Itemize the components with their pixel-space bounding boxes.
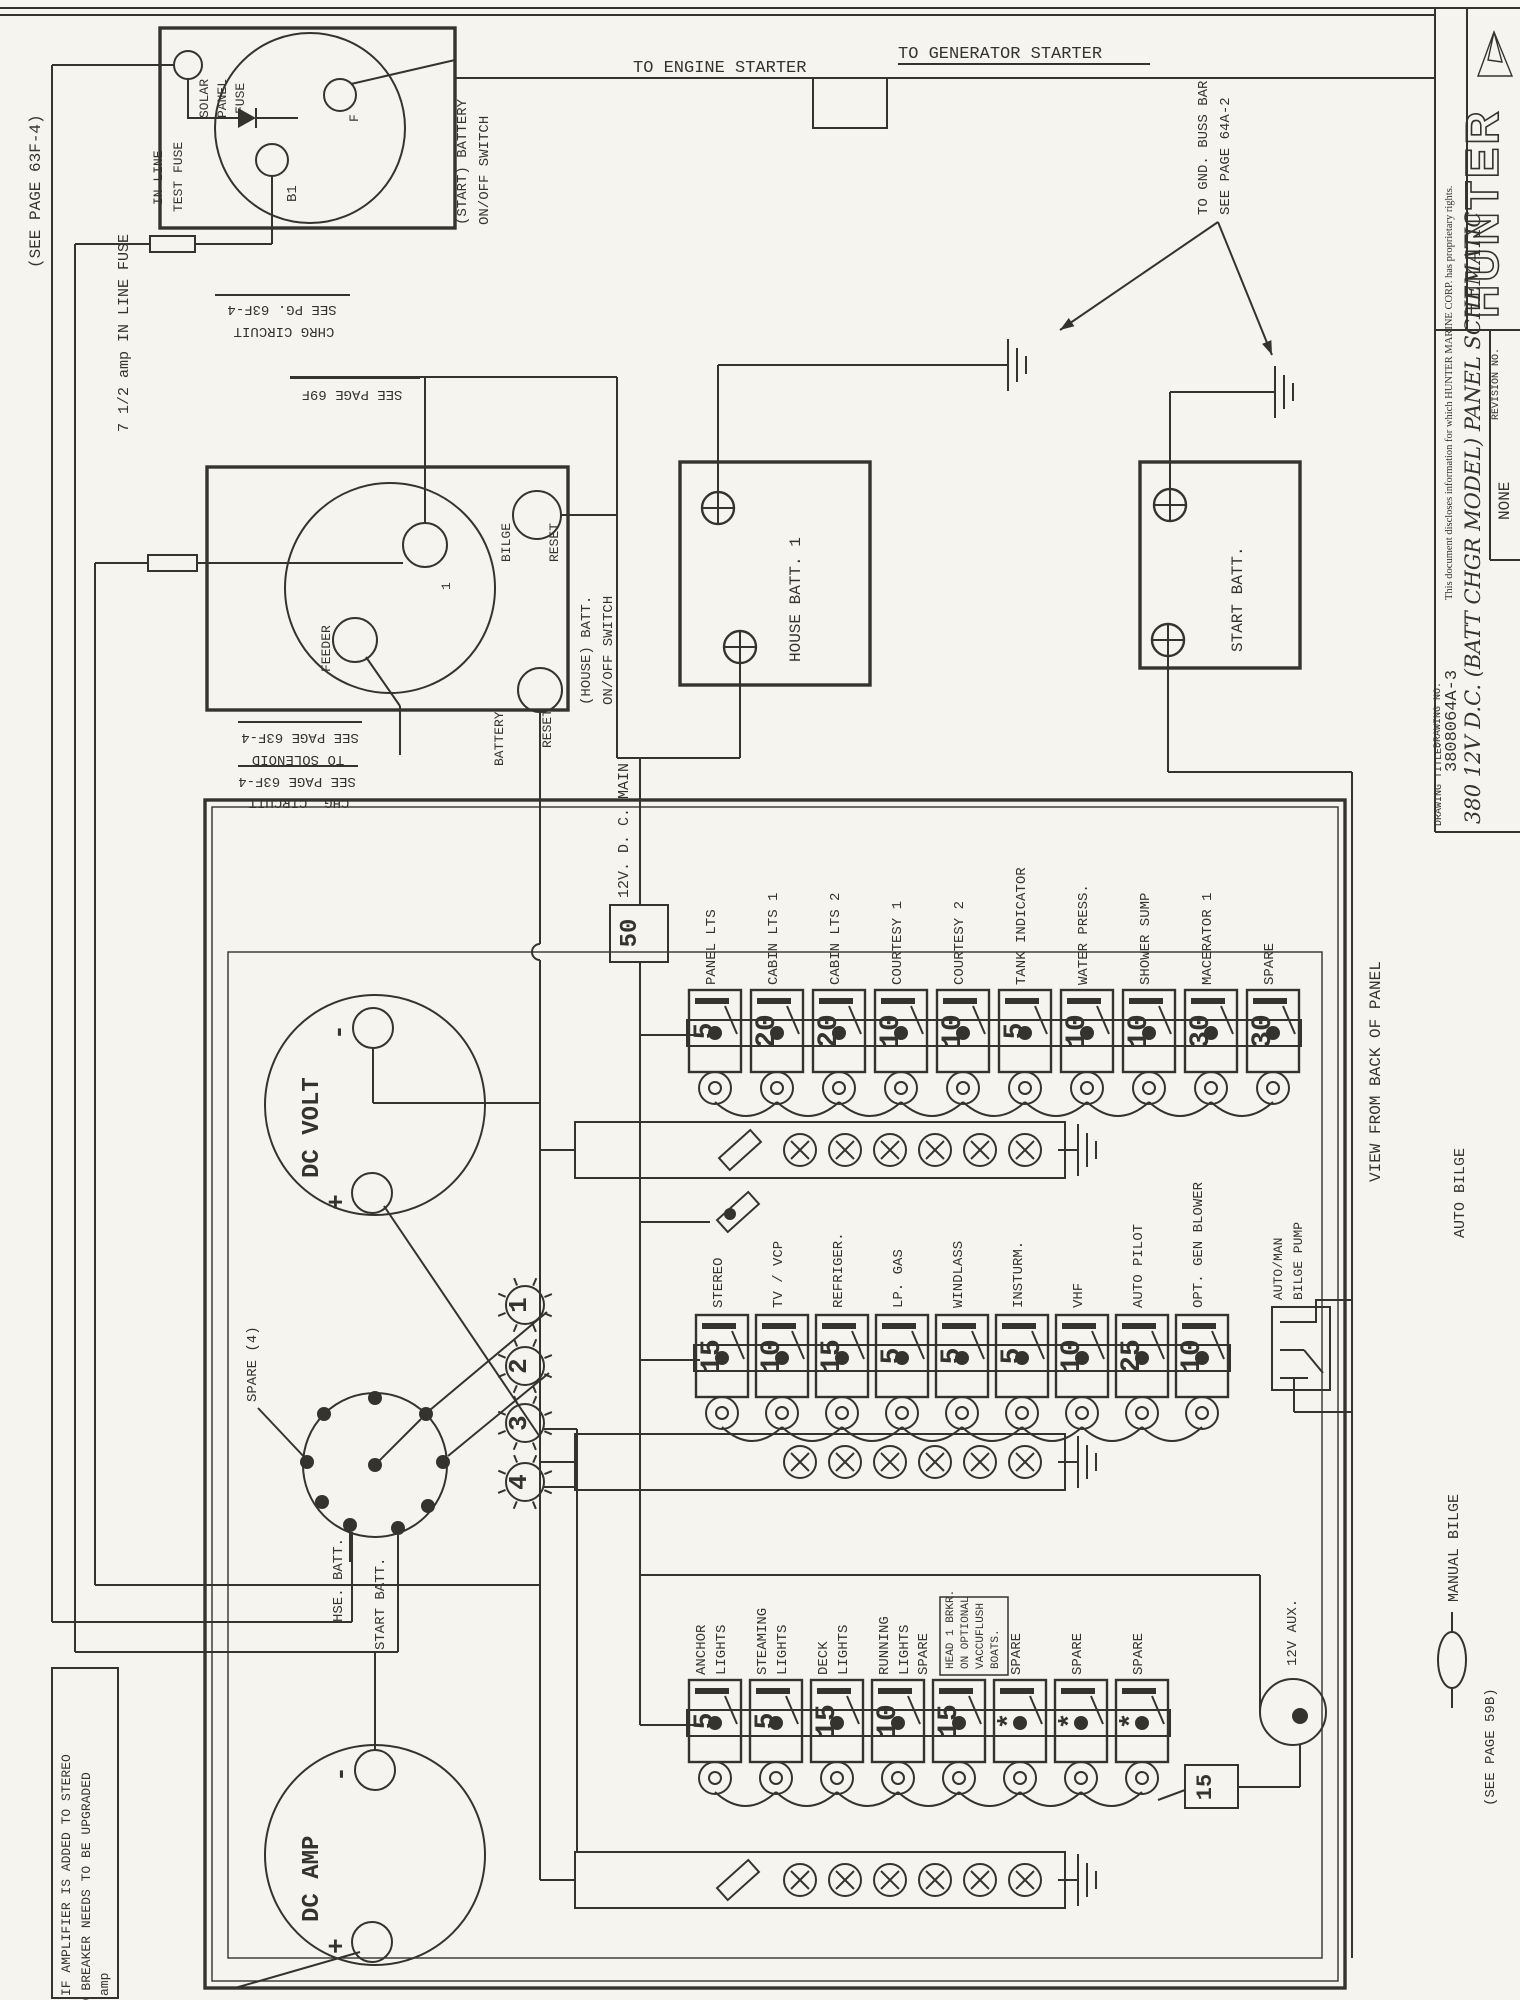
inline-test-fuse-icon: [150, 236, 195, 252]
breaker-terminal-center-icon: [1143, 1082, 1155, 1094]
wire: [836, 1141, 854, 1159]
bus-dot-icon: [1080, 1026, 1094, 1040]
schematic-drawing: (SEE PAGE 63F-4) IN LINE TEST FUSE SOLAR…: [0, 0, 1520, 2000]
bus-dot-icon: [1204, 1026, 1218, 1040]
breaker-label: TANK INDICATOR: [1014, 867, 1030, 985]
wire: [776, 1792, 837, 1806]
rotary-dot-icon: [317, 1407, 331, 1421]
rotary-dot-icon: [343, 1518, 357, 1532]
breaker-terminal-icon: [761, 1072, 793, 1104]
ground-bus-box: [575, 1852, 1065, 1908]
solar-fuse-label-3: FUSE: [233, 83, 248, 114]
inline-test-fuse-label-2: TEST FUSE: [171, 142, 186, 212]
wire: [836, 1453, 854, 1471]
wire: [1078, 1436, 1096, 1488]
rotary-hse-label: HSE. BATT.: [331, 1538, 347, 1622]
switch-lever-icon: [717, 1192, 759, 1232]
drawing-title-label: DRAWING TITLE:: [1434, 742, 1445, 826]
wire: [777, 1102, 839, 1116]
wire: [514, 1501, 517, 1508]
wire: [926, 1871, 944, 1889]
manual-bilge-label: MANUAL BILGE: [1446, 1494, 1463, 1602]
feeder-terminal-icon: [333, 618, 377, 662]
revision-label: REVISION NO.: [1491, 348, 1502, 420]
rotary-dot-icon: [368, 1391, 382, 1405]
start-battery-switch-box: [160, 28, 455, 228]
breaker-terminal-center-icon: [836, 1407, 848, 1419]
ground-bus-box: [575, 1122, 1065, 1178]
aux-outlet-icon: [1260, 1679, 1326, 1745]
bus-dot-icon: [1142, 1026, 1156, 1040]
wire: [533, 1442, 536, 1449]
terminal-1-label: 1: [439, 582, 454, 590]
rotary-dot-icon: [315, 1495, 329, 1509]
inline-fuse-7-5-icon: [148, 555, 197, 571]
manual-bilge-fuse-icon: [1438, 1632, 1466, 1688]
wire: [1275, 366, 1293, 418]
bus-dot-icon: [1074, 1716, 1088, 1730]
wire: [1218, 222, 1272, 355]
chg-note-2: CHG. CIRCUIT: [249, 794, 350, 810]
house-battery-switch-dial: [285, 483, 495, 693]
wire: [1149, 1102, 1211, 1116]
wire: [514, 1324, 517, 1331]
ground-bus-box: [575, 1434, 1065, 1490]
wire: [533, 1501, 536, 1508]
wire: [1016, 1453, 1034, 1471]
arrowhead-icon: [1262, 340, 1272, 355]
breaker-terminal-center-icon: [1196, 1407, 1208, 1419]
bus-dot-icon: [895, 1351, 909, 1365]
amp-plus-sign: +: [322, 1938, 352, 1954]
to-generator-starter-label: TO GENERATOR STARTER: [898, 45, 1102, 64]
wire: [498, 1294, 505, 1297]
see-page-69f-label: SEE PAGE 69F: [302, 386, 403, 402]
breaker-label: LP. GAS: [891, 1249, 907, 1308]
note-line-2: 30 BREAKER NEEDS TO BE UPGRADED: [79, 1772, 94, 2000]
bus-dot-icon: [715, 1351, 729, 1365]
breaker-contact-icon: [1067, 998, 1101, 1004]
wire: [533, 1324, 536, 1331]
hunter-logo-icon: [1478, 32, 1512, 76]
breaker-terminal-center-icon: [956, 1407, 968, 1419]
wire: [881, 1141, 899, 1159]
schematic-page: (SEE PAGE 63F-4) IN LINE TEST FUSE SOLAR…: [0, 0, 1520, 2000]
terminal-1-icon: [403, 523, 447, 567]
wire: [514, 1278, 517, 1285]
feeder-label: FEEDER: [319, 625, 334, 672]
breaker-terminal-center-icon: [1014, 1772, 1026, 1784]
bus-dot-icon: [830, 1716, 844, 1730]
start-battery-label: START BATT.: [1229, 546, 1247, 652]
breaker-contact-icon: [819, 998, 853, 1004]
breaker-terminal-center-icon: [831, 1772, 843, 1784]
lever-dot-icon: [724, 1208, 736, 1220]
wire: [514, 1385, 517, 1392]
breaker-note-line: HEAD 1 BRKR.: [945, 1590, 957, 1669]
wire: [1020, 1792, 1081, 1806]
breaker-label: MACERATOR 1: [1200, 893, 1216, 985]
wire: [498, 1355, 505, 1358]
breaker-terminal-center-icon: [1081, 1082, 1093, 1094]
breaker-terminal-center-icon: [896, 1407, 908, 1419]
breaker-terminal-icon: [766, 1397, 798, 1429]
wire: [926, 1141, 944, 1159]
wire: [791, 1141, 809, 1159]
breaker-terminal-center-icon: [770, 1772, 782, 1784]
breaker-label: DECK: [816, 1641, 832, 1675]
breaker-contact-icon: [695, 998, 729, 1004]
breaker-terminal-icon: [706, 1397, 738, 1429]
breaker-terminal-icon: [1009, 1072, 1041, 1104]
start-switch-label-2: ON/OFF SWITCH: [477, 116, 493, 225]
amp-minus-terminal-icon: [355, 1750, 395, 1790]
bus-dot-icon: [708, 1026, 722, 1040]
page-border: [0, 8, 1520, 15]
rotary-dot-icon: [419, 1407, 433, 1421]
breaker-terminal-center-icon: [716, 1407, 728, 1419]
rotary-dot-icon: [300, 1455, 314, 1469]
revision-value: NONE: [1496, 482, 1514, 520]
breaker-label: INSTURM.: [1011, 1241, 1027, 1308]
wire: [1016, 1871, 1034, 1889]
breaker-contact-icon: [822, 1323, 856, 1329]
volt-plus-terminal-icon: [352, 1173, 392, 1213]
wire: [514, 1455, 517, 1462]
breaker-contact-icon: [1182, 1323, 1216, 1329]
breaker-label: AUTO PILOT: [1131, 1224, 1147, 1308]
wire: [836, 1871, 854, 1889]
wire: [926, 1453, 944, 1471]
bilge-reset-label-1: BILGE: [499, 523, 514, 562]
breaker-label: SPARE: [916, 1633, 932, 1675]
bus-dot-icon: [1135, 1716, 1149, 1730]
breaker-terminal-center-icon: [709, 1772, 721, 1784]
generated-components: PANEL LTS5CABIN LTS 120CABIN LTS 220COUR…: [258, 222, 1301, 1908]
breaker-contact-icon: [1005, 998, 1039, 1004]
breaker-terminal-icon: [1065, 1762, 1097, 1794]
breaker-contact-icon: [756, 1688, 790, 1694]
wire: [791, 1871, 809, 1889]
breaker-terminal-center-icon: [709, 1082, 721, 1094]
breaker-contact-icon: [882, 1323, 916, 1329]
to-gnd-buss-label-1: TO GND. BUSS BAR: [1196, 80, 1212, 215]
wire: [533, 1396, 536, 1403]
lamp-number: 3: [504, 1415, 534, 1431]
breaker-contact-icon: [1061, 1688, 1095, 1694]
breaker-contact-icon: [1129, 998, 1163, 1004]
breaker-terminal-icon: [1126, 1397, 1158, 1429]
bus-dot-icon: [1018, 1026, 1032, 1040]
bus-dot-icon: [1015, 1351, 1029, 1365]
breaker-terminal-center-icon: [1016, 1407, 1028, 1419]
breaker-label: LIGHTS: [836, 1625, 852, 1675]
bus-dot-icon: [956, 1026, 970, 1040]
battery-reset-breaker-icon: [518, 668, 562, 712]
dc-amp-label: DC AMP: [299, 1836, 326, 1922]
volt-minus-terminal-icon: [353, 1008, 393, 1048]
breaker-contact-icon: [1062, 1323, 1096, 1329]
rotary-dot-icon: [436, 1455, 450, 1469]
breaker-label: CABIN LTS 1: [766, 893, 782, 985]
wire: [544, 1471, 551, 1474]
bus-dot-icon: [708, 1716, 722, 1730]
breaker-terminal-icon: [1186, 1397, 1218, 1429]
to-gnd-buss-label-2: SEE PAGE 64A-2: [1218, 97, 1234, 215]
house-battery-label: HOUSE BATT. 1: [787, 537, 805, 662]
wire: [715, 1792, 776, 1806]
breaker-label: SPARE: [1262, 943, 1278, 985]
solenoid-note-2: TO SOLENOID: [252, 751, 344, 767]
wire: [514, 1442, 517, 1449]
auto-bilge-label: AUTO BILGE: [1452, 1148, 1469, 1238]
see-page-59b-label: (SEE PAGE 59B): [1483, 1688, 1499, 1806]
bus-dot-icon: [835, 1351, 849, 1365]
breaker-contact-icon: [762, 1323, 796, 1329]
breaker-label: OPT. GEN BLOWER: [1191, 1181, 1207, 1308]
volt-plus-sign: +: [322, 1194, 352, 1210]
breaker-label: LIGHTS: [897, 1625, 913, 1675]
see-page-63f4-label: (SEE PAGE 63F-4): [27, 114, 45, 268]
breaker-terminal-icon: [886, 1397, 918, 1429]
lamp-number: 4: [504, 1474, 534, 1490]
wire: [1078, 1124, 1096, 1176]
proprietary-notice: This document discloses information for …: [1444, 186, 1455, 600]
bus-dot-icon: [775, 1351, 789, 1365]
automan-bilge-label-1: AUTO/MAN: [1271, 1238, 1286, 1300]
breaker-terminal-icon: [1004, 1762, 1036, 1794]
wire: [1211, 1102, 1273, 1116]
wire: [963, 1102, 1025, 1116]
breaker-contact-icon: [757, 998, 791, 1004]
dc-main-label: 12V. D. C. MAIN: [616, 763, 633, 898]
breaker-contact-icon: [1253, 998, 1287, 1004]
bus-dot-icon: [1013, 1716, 1027, 1730]
arrowhead-icon: [1060, 318, 1074, 330]
bus-dot-icon: [1135, 1351, 1149, 1365]
inline-fuse-7-5-label: 7 1/2 amp IN LINE FUSE: [116, 234, 133, 432]
wire: [533, 1385, 536, 1392]
bus-dot-icon: [832, 1026, 846, 1040]
wire: [1081, 1792, 1142, 1806]
breaker-terminal-icon: [943, 1762, 975, 1794]
breaker-note-line: ON OPTIONAL: [960, 1596, 972, 1669]
terminal-f-icon: [324, 79, 356, 111]
breaker-terminal-icon: [823, 1072, 855, 1104]
breaker-label: STEREO: [711, 1258, 727, 1308]
breaker-label: SPARE: [1009, 1633, 1025, 1675]
wire: [533, 1278, 536, 1285]
breaker-contact-icon: [1002, 1323, 1036, 1329]
bilge-switch-contacts-icon: [1280, 1322, 1323, 1378]
wire: [544, 1490, 551, 1493]
aux-fuse-value: 15: [1193, 1774, 1218, 1800]
breaker-contact-icon: [943, 998, 977, 1004]
breaker-terminal-icon: [760, 1762, 792, 1794]
wire: [1078, 1854, 1096, 1906]
switch-lever-icon: [719, 1130, 761, 1170]
breaker-terminal-icon: [699, 1072, 731, 1104]
breaker-contact-icon: [1122, 1323, 1156, 1329]
bus-dot-icon: [770, 1026, 784, 1040]
start-switch-label-1: (START) BATTERY: [455, 98, 471, 225]
breaker-terminal-center-icon: [892, 1772, 904, 1784]
solar-fuse-label-2: PANEL: [215, 79, 230, 118]
wire: [544, 1431, 551, 1434]
rotary-dot-icon: [391, 1521, 405, 1535]
breaker-label: STEAMING: [755, 1608, 771, 1675]
breaker-terminal-center-icon: [1075, 1772, 1087, 1784]
wire: [971, 1453, 989, 1471]
breaker-terminal-icon: [821, 1762, 853, 1794]
main-fuse-value: 50: [617, 919, 644, 948]
wire: [544, 1355, 551, 1358]
terminal-b1-icon: [256, 144, 288, 176]
breaker-terminal-icon: [882, 1762, 914, 1794]
view-from-back-label: VIEW FROM BACK OF PANEL: [1367, 961, 1385, 1182]
breaker-terminal-icon: [885, 1072, 917, 1104]
terminal-f-label: F: [347, 114, 362, 122]
chrg-note-2: CHRG CIRCUIT: [234, 323, 335, 339]
wire: [533, 1339, 536, 1346]
lamp-number: 2: [504, 1358, 534, 1374]
chrg-note-1: SEE PG. 63F-4: [227, 301, 336, 317]
solar-panel-fuse-stud-icon: [174, 51, 202, 79]
breaker-terminal-center-icon: [771, 1082, 783, 1094]
wire: [498, 1471, 505, 1474]
breaker-label: RUNNING: [877, 1616, 893, 1675]
breaker-label: SPARE: [1070, 1633, 1086, 1675]
wire: [791, 1453, 809, 1471]
breaker-contact-icon: [878, 1688, 912, 1694]
inline-test-fuse-label-1: IN LINE: [151, 150, 166, 205]
breaker-label: TV / VCP: [771, 1241, 787, 1308]
wire: [1142, 1427, 1202, 1441]
battery-reset-label-1: BATTERY: [492, 711, 507, 766]
breaker-terminal-center-icon: [1205, 1082, 1217, 1094]
breaker-contact-icon: [695, 1688, 729, 1694]
breaker-contact-icon: [939, 1688, 973, 1694]
amp-plus-terminal-icon: [352, 1922, 392, 1962]
bus-dot-icon: [769, 1716, 783, 1730]
breaker-contact-icon: [1000, 1688, 1034, 1694]
breaker-terminal-center-icon: [1019, 1082, 1031, 1094]
breaker-terminal-icon: [1066, 1397, 1098, 1429]
wire: [881, 1871, 899, 1889]
breaker-terminal-center-icon: [1267, 1082, 1279, 1094]
breaker-terminal-center-icon: [953, 1772, 965, 1784]
drawing-title-value: 380 12V D.C. (BATT CHGR MODEL) PANEL SCH…: [1461, 212, 1485, 825]
rotary-spare-label: SPARE (4): [245, 1326, 261, 1402]
wire: [839, 1102, 901, 1116]
breaker-terminal-center-icon: [1136, 1772, 1148, 1784]
terminal-b1-label: B1: [285, 185, 301, 202]
breaker-contact-icon: [702, 1323, 736, 1329]
dc-amp-meter: [265, 1745, 485, 1965]
bus-dot-icon: [955, 1351, 969, 1365]
breaker-terminal-icon: [947, 1072, 979, 1104]
bus-dot-icon: [894, 1026, 908, 1040]
drawing-no-value: 3808064A-3: [1443, 670, 1462, 772]
switch-lever-icon: [717, 1860, 759, 1900]
wire: [544, 1313, 551, 1316]
note-line-3: amp: [97, 1973, 112, 1996]
wire: [544, 1294, 551, 1297]
breaker-terminal-icon: [1006, 1397, 1038, 1429]
chg-note-1: SEE PAGE 63F-4: [238, 773, 356, 789]
breaker-label: WATER PRESS.: [1076, 884, 1092, 985]
wire: [715, 1102, 777, 1116]
wire: [514, 1339, 517, 1346]
bilge-reset-label-2: RESET: [547, 523, 562, 562]
wire: [1025, 1102, 1087, 1116]
bus-dot-icon: [1195, 1351, 1209, 1365]
breaker-terminal-center-icon: [1076, 1407, 1088, 1419]
wire: [1087, 1102, 1149, 1116]
breaker-label: COURTESY 1: [890, 901, 906, 985]
bus-dot-icon: [952, 1716, 966, 1730]
aux-12v-label: 12V AUX.: [1285, 1599, 1301, 1666]
battery-reset-label-2: RESET: [540, 709, 555, 748]
house-switch-label-1: (HOUSE) BATT.: [579, 596, 595, 705]
wire: [258, 1408, 307, 1460]
wire: [375, 1419, 421, 1465]
wire: [1082, 1427, 1142, 1441]
start-battery-box: [1140, 462, 1300, 668]
breaker-label: LIGHTS: [775, 1625, 791, 1675]
breaker-label: LIGHTS: [714, 1625, 730, 1675]
breaker-label: CABIN LTS 2: [828, 893, 844, 985]
wire: [971, 1871, 989, 1889]
breaker-terminal-icon: [946, 1397, 978, 1429]
breaker-terminal-icon: [1133, 1072, 1165, 1104]
breaker-note-line: VACCUFLUSH: [975, 1603, 987, 1669]
wire: [898, 1792, 959, 1806]
breaker-note-line: BOATS.: [990, 1629, 1002, 1669]
start-battery-switch-dial: [215, 33, 405, 223]
breaker-terminal-icon: [826, 1397, 858, 1429]
wire: [1060, 222, 1218, 330]
breaker-terminal-center-icon: [957, 1082, 969, 1094]
bus-dot-icon: [891, 1716, 905, 1730]
breaker-terminal-icon: [1071, 1072, 1103, 1104]
wire: [1016, 1141, 1034, 1159]
wire: [881, 1453, 899, 1471]
note-line-1: IF AMPLIFIER IS ADDED TO STEREO: [59, 1754, 74, 1996]
house-battery-switch-box: [207, 467, 568, 710]
wire: [901, 1102, 963, 1116]
wire: [533, 1455, 536, 1462]
breaker-label: SHOWER SUMP: [1138, 893, 1154, 985]
automan-bilge-label-2: BILGE PUMP: [1291, 1222, 1306, 1300]
amp-minus-sign: -: [326, 1766, 356, 1782]
breaker-terminal-center-icon: [833, 1082, 845, 1094]
bus-dot-icon: [1075, 1351, 1089, 1365]
wire: [971, 1141, 989, 1159]
dc-volt-meter: [265, 995, 485, 1215]
breaker-label: SPARE: [1131, 1633, 1147, 1675]
breaker-contact-icon: [1122, 1688, 1156, 1694]
solar-fuse-label-1: SOLAR: [197, 79, 212, 118]
breaker-label: REFRIGER.: [831, 1232, 847, 1308]
breaker-terminal-center-icon: [1136, 1407, 1148, 1419]
wire: [544, 1412, 551, 1415]
bus-dot-icon: [1266, 1026, 1280, 1040]
aux-outlet-terminal-icon: [1292, 1708, 1308, 1724]
breaker-terminal-icon: [1257, 1072, 1289, 1104]
breaker-label: PANEL LTS: [704, 909, 720, 985]
breaker-terminal-icon: [1195, 1072, 1227, 1104]
